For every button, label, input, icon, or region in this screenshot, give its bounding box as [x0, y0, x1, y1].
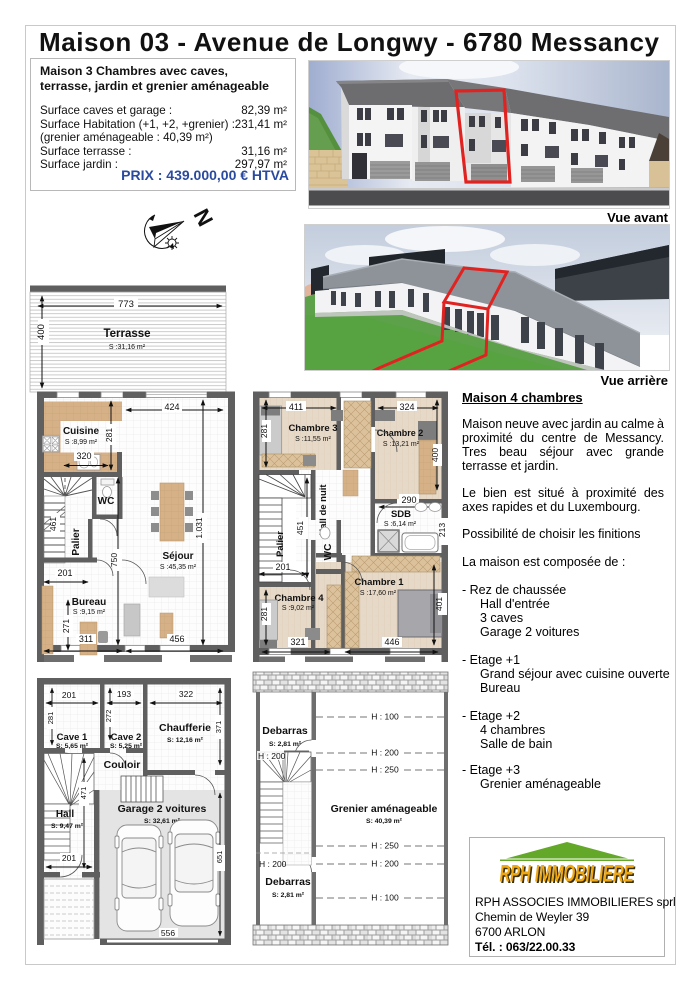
svg-text:201: 201	[62, 690, 76, 700]
svg-text:RPH IMMOBILIERE: RPH IMMOBILIERE	[500, 861, 635, 888]
svg-text:750: 750	[109, 553, 119, 567]
svg-text:Cave 2: Cave 2	[111, 732, 142, 743]
svg-text:S :8,99 m²: S :8,99 m²	[65, 439, 98, 446]
svg-text:371: 371	[214, 721, 223, 734]
svg-text:446: 446	[384, 637, 399, 647]
svg-text:471: 471	[79, 787, 88, 800]
svg-text:H : 200: H : 200	[259, 859, 287, 869]
svg-text:311: 311	[79, 634, 93, 644]
svg-text:Garage 2 voitures: Garage 2 voitures	[118, 803, 207, 815]
svg-text:Séjour: Séjour	[162, 551, 193, 562]
svg-text:201: 201	[57, 568, 72, 578]
svg-text:411: 411	[289, 402, 303, 412]
svg-text:S :13,21 m²: S :13,21 m²	[383, 441, 420, 448]
svg-text:Cave 1: Cave 1	[57, 732, 88, 743]
svg-text:S: 12,16 m²: S: 12,16 m²	[167, 737, 204, 744]
svg-text:H : 200: H : 200	[371, 859, 399, 869]
svg-text:272: 272	[104, 710, 113, 723]
svg-text:Chambre 2: Chambre 2	[377, 428, 424, 438]
svg-text:322: 322	[179, 689, 193, 699]
svg-text:Palier: Palier	[71, 528, 82, 555]
svg-text:1.031: 1.031	[194, 517, 204, 539]
svg-text:Cuisine: Cuisine	[63, 426, 100, 437]
svg-text:773: 773	[118, 299, 134, 310]
svg-text:Palier: Palier	[275, 531, 286, 557]
svg-text:400: 400	[430, 448, 440, 462]
svg-text:213: 213	[437, 523, 447, 537]
svg-text:H : 100: H : 100	[371, 893, 399, 903]
svg-text:S :11,55 m²: S :11,55 m²	[295, 436, 331, 443]
svg-text:281: 281	[259, 424, 269, 438]
svg-text:H : 250: H : 250	[371, 765, 399, 775]
svg-text:Chaufferie: Chaufferie	[159, 722, 211, 734]
svg-text:Couloir: Couloir	[104, 759, 141, 771]
svg-text:Chambre 4: Chambre 4	[274, 593, 324, 604]
svg-text:S :45,35 m²: S :45,35 m²	[160, 564, 197, 571]
svg-text:WC: WC	[323, 544, 334, 561]
svg-text:H : 100: H : 100	[371, 712, 399, 722]
svg-text:S :17,60 m²: S :17,60 m²	[360, 590, 397, 597]
svg-text:556: 556	[161, 928, 175, 938]
svg-text:201: 201	[62, 853, 76, 863]
svg-text:281: 281	[46, 712, 55, 725]
svg-text:Hall: Hall	[56, 809, 75, 820]
svg-text:Grenier aménageable: Grenier aménageable	[331, 803, 438, 815]
svg-text:451: 451	[295, 521, 305, 535]
svg-text:201: 201	[275, 562, 290, 572]
svg-text:S :9,15 m²: S :9,15 m²	[73, 609, 106, 616]
svg-text:S: 2,81 m²: S: 2,81 m²	[272, 892, 305, 899]
svg-text:401: 401	[434, 597, 444, 611]
svg-text:Chambre 3: Chambre 3	[288, 423, 337, 434]
svg-text:456: 456	[169, 634, 184, 644]
svg-text:Debarras: Debarras	[262, 725, 308, 737]
svg-text:424: 424	[164, 402, 179, 412]
svg-text:651: 651	[215, 851, 224, 864]
svg-text:324: 324	[399, 402, 414, 412]
svg-text:281: 281	[259, 607, 269, 621]
svg-text:S :9,02 m²: S :9,02 m²	[282, 605, 315, 612]
svg-text:400: 400	[36, 324, 47, 340]
svg-text:271: 271	[61, 619, 71, 633]
svg-text:S :31,16 m²: S :31,16 m²	[109, 344, 146, 351]
svg-text:H : 200: H : 200	[371, 748, 399, 758]
svg-text:H : 200: H : 200	[258, 751, 286, 761]
svg-text:S: 9,47 m²: S: 9,47 m²	[51, 823, 84, 830]
svg-text:WC: WC	[98, 496, 115, 507]
svg-text:S: 40,39 m²: S: 40,39 m²	[366, 818, 403, 825]
svg-text:S: 5,25 m²: S: 5,25 m²	[110, 743, 143, 750]
svg-text:SDB: SDB	[391, 509, 411, 520]
svg-text:S: 5,65 m²: S: 5,65 m²	[56, 743, 89, 750]
svg-text:Bureau: Bureau	[72, 597, 106, 608]
svg-text:320: 320	[76, 451, 91, 461]
svg-text:290: 290	[401, 495, 416, 505]
svg-text:461: 461	[48, 517, 58, 531]
svg-text:H : 250: H : 250	[371, 841, 399, 851]
svg-text:N: N	[189, 205, 219, 231]
svg-text:Terrasse: Terrasse	[103, 328, 150, 340]
svg-text:S :6,14 m²: S :6,14 m²	[384, 521, 417, 528]
svg-text:Debarras: Debarras	[265, 876, 311, 888]
svg-text:281: 281	[104, 428, 114, 442]
svg-text:321: 321	[290, 637, 305, 647]
svg-text:193: 193	[117, 689, 131, 699]
svg-text:S: 2,81 m²: S: 2,81 m²	[269, 741, 302, 748]
